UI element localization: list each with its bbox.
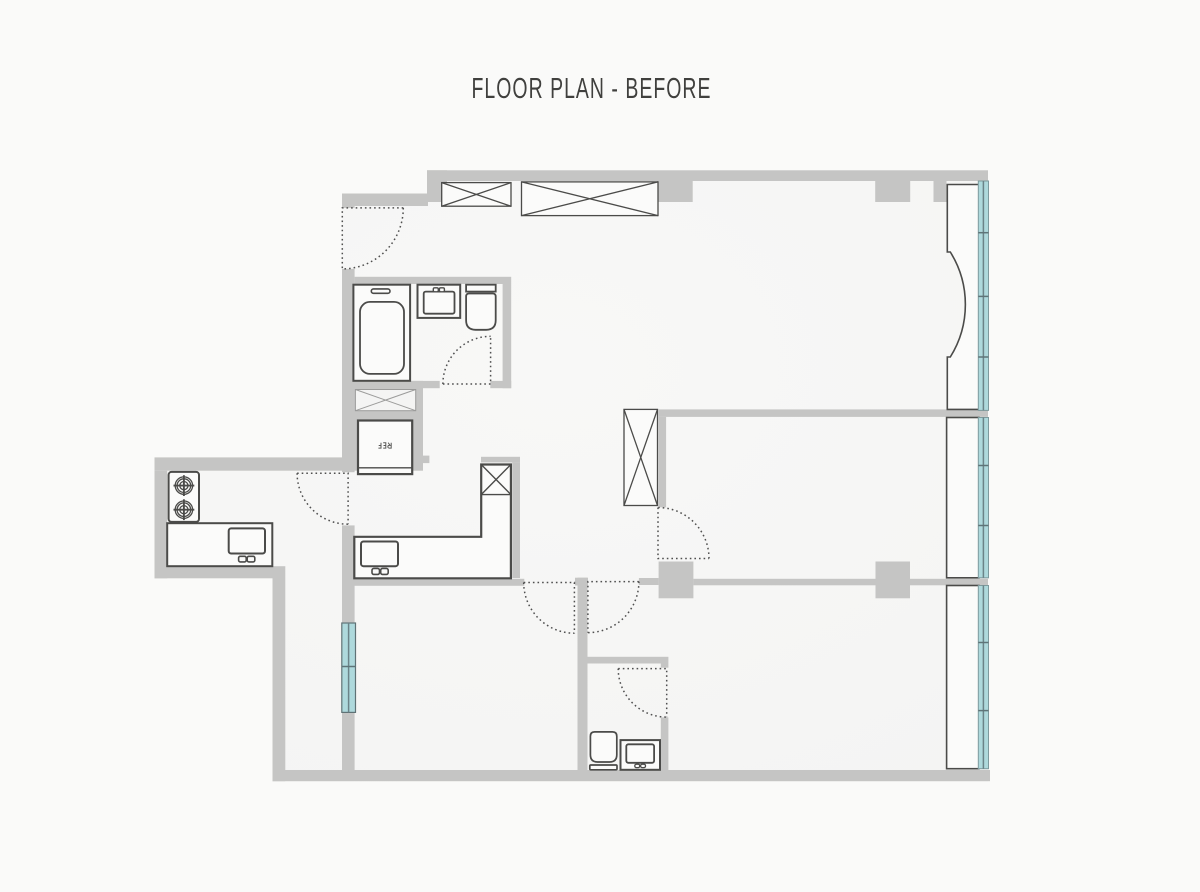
svg-text:FLOOR PLAN - BEFORE: FLOOR PLAN - BEFORE: [472, 73, 712, 105]
